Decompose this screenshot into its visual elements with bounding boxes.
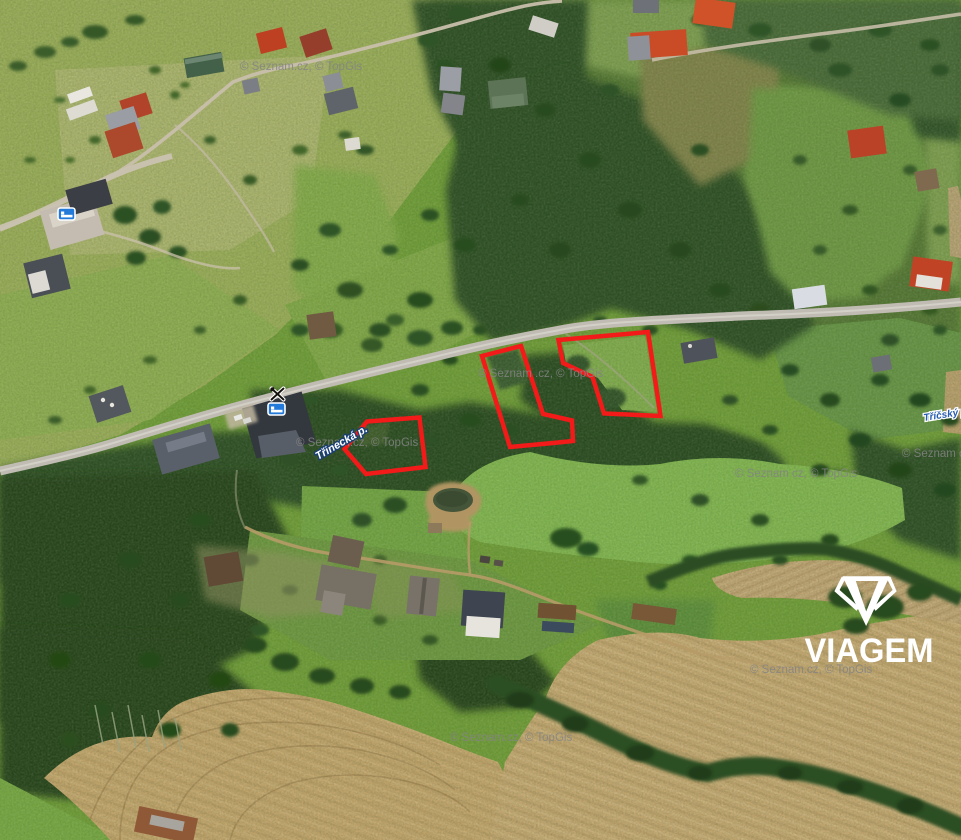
- svg-text:© Seznam.cz, © TopGis: © Seznam.cz, © TopGis: [240, 61, 362, 73]
- svg-text:© Seznam.cz, © TopGis: © Seznam.cz, © TopGis: [450, 732, 572, 744]
- svg-text:© Seznam cz, © TopGis: © Seznam cz, © TopGis: [735, 468, 857, 480]
- svg-text:VIAGEM: VIAGEM: [805, 632, 934, 670]
- svg-text:© Seznam .cz, © TopGis: © Seznam .cz, © TopGis: [478, 368, 604, 380]
- svg-text:© Seznam c: © Seznam c: [902, 448, 961, 460]
